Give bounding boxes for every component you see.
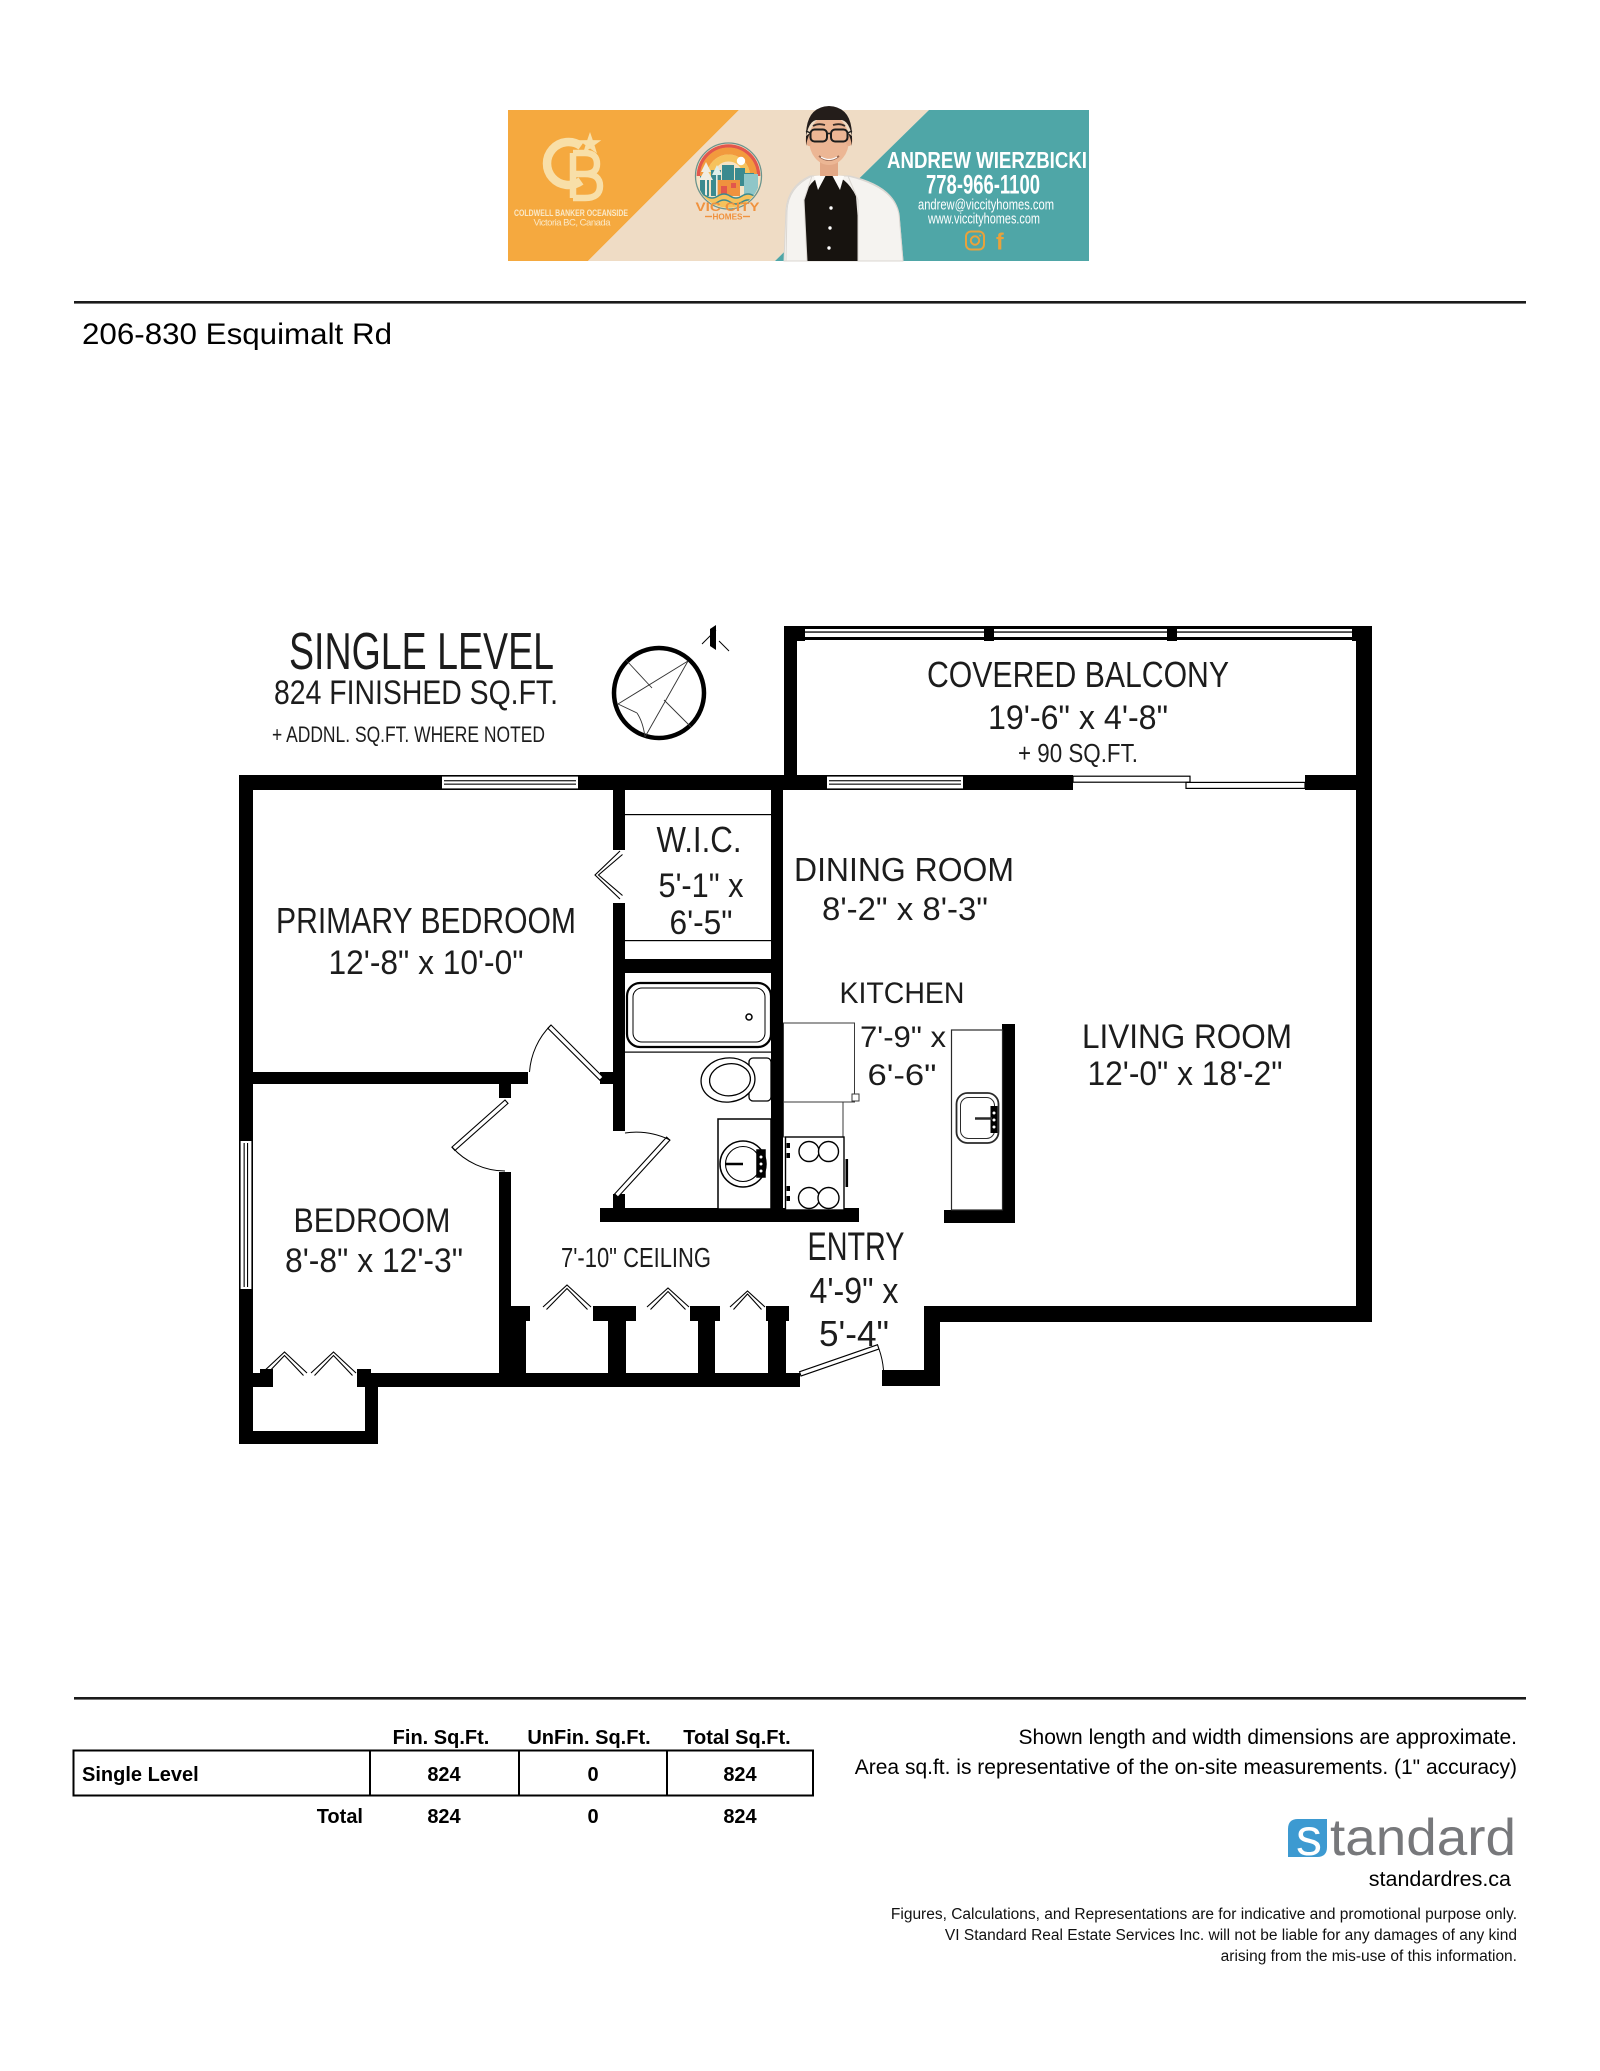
svg-text:DINING ROOM: DINING ROOM [794, 851, 1014, 888]
svg-text:7'-9" x: 7'-9" x [860, 1021, 946, 1054]
svg-text:LIVING ROOM: LIVING ROOM [1082, 1018, 1292, 1056]
svg-text:Figures, Calculations, and Rep: Figures, Calculations, and Representatio… [891, 1906, 1517, 1923]
svg-text:tandard: tandard [1330, 1809, 1516, 1867]
svg-text:ENTRY: ENTRY [808, 1225, 905, 1269]
svg-text:f: f [996, 229, 1004, 255]
svg-text:824: 824 [723, 1806, 757, 1828]
svg-text:Shown length and width dimensi: Shown length and width dimensions are ap… [1019, 1726, 1517, 1749]
svg-text:standardres.ca: standardres.ca [1369, 1867, 1511, 1891]
svg-text:Total Sq.Ft.: Total Sq.Ft. [683, 1727, 790, 1749]
svg-text:+ 90 SQ.FT.: + 90 SQ.FT. [1018, 738, 1138, 768]
svg-text:19'-6" x 4'-8": 19'-6" x 4'-8" [988, 699, 1168, 737]
svg-text:Fin. Sq.Ft.: Fin. Sq.Ft. [393, 1727, 490, 1749]
svg-text:Victoria BC, Canada: Victoria BC, Canada [534, 218, 612, 229]
svg-text:824: 824 [427, 1764, 461, 1786]
svg-text:Area sq.ft. is representative: Area sq.ft. is representative of the on-… [855, 1756, 1517, 1779]
svg-text:824: 824 [723, 1764, 757, 1786]
svg-text:COLDWELL BANKER OCEANSIDE: COLDWELL BANKER OCEANSIDE [514, 208, 628, 218]
svg-text:www.viccityhomes.com: www.viccityhomes.com [927, 211, 1040, 228]
svg-text:Single Level: Single Level [82, 1764, 199, 1786]
svg-text:PRIMARY BEDROOM: PRIMARY BEDROOM [276, 900, 576, 941]
svg-text:6'-5": 6'-5" [670, 904, 733, 942]
svg-text:COVERED BALCONY: COVERED BALCONY [927, 654, 1229, 695]
svg-text:12'-0" x 18'-2": 12'-0" x 18'-2" [1088, 1055, 1283, 1093]
svg-text:206-830 Esquimalt Rd: 206-830 Esquimalt Rd [82, 318, 392, 351]
svg-text:5'-1" x: 5'-1" x [659, 867, 744, 905]
svg-text:VI Standard Real Estate Servic: VI Standard Real Estate Services Inc. wi… [945, 1927, 1517, 1944]
svg-text:arising from the mis-use of th: arising from the mis-use of this informa… [1221, 1948, 1517, 1965]
svg-text:W.I.C.: W.I.C. [657, 819, 742, 860]
svg-text:824: 824 [427, 1806, 461, 1828]
svg-text:5'-4": 5'-4" [819, 1313, 889, 1354]
svg-text:+ ADDNL. SQ.FT. WHERE NOTED: + ADDNL. SQ.FT. WHERE NOTED [272, 722, 545, 747]
svg-text:SINGLE LEVEL: SINGLE LEVEL [289, 623, 554, 681]
svg-text:7'-10" CEILING: 7'-10" CEILING [561, 1242, 711, 1273]
svg-text:Total: Total [317, 1806, 363, 1828]
svg-text:824 FINISHED SQ.FT.: 824 FINISHED SQ.FT. [274, 674, 558, 712]
svg-text:BEDROOM: BEDROOM [294, 1202, 451, 1240]
svg-text:UnFin. Sq.Ft.: UnFin. Sq.Ft. [527, 1727, 650, 1749]
svg-text:8'-2" x 8'-3": 8'-2" x 8'-3" [822, 891, 988, 927]
svg-text:778-966-1100: 778-966-1100 [926, 170, 1040, 200]
svg-text:KITCHEN: KITCHEN [840, 977, 965, 1010]
svg-text:0: 0 [587, 1806, 598, 1828]
svg-text:s: s [1296, 1809, 1322, 1867]
svg-text:4'-9" x: 4'-9" x [810, 1270, 899, 1311]
svg-text:HOMES: HOMES [713, 213, 744, 222]
svg-text:6'-6": 6'-6" [868, 1059, 937, 1092]
svg-text:8'-8" x 12'-3": 8'-8" x 12'-3" [285, 1242, 463, 1280]
svg-text:12'-8" x 10'-0": 12'-8" x 10'-0" [329, 944, 524, 982]
svg-text:0: 0 [587, 1764, 598, 1786]
